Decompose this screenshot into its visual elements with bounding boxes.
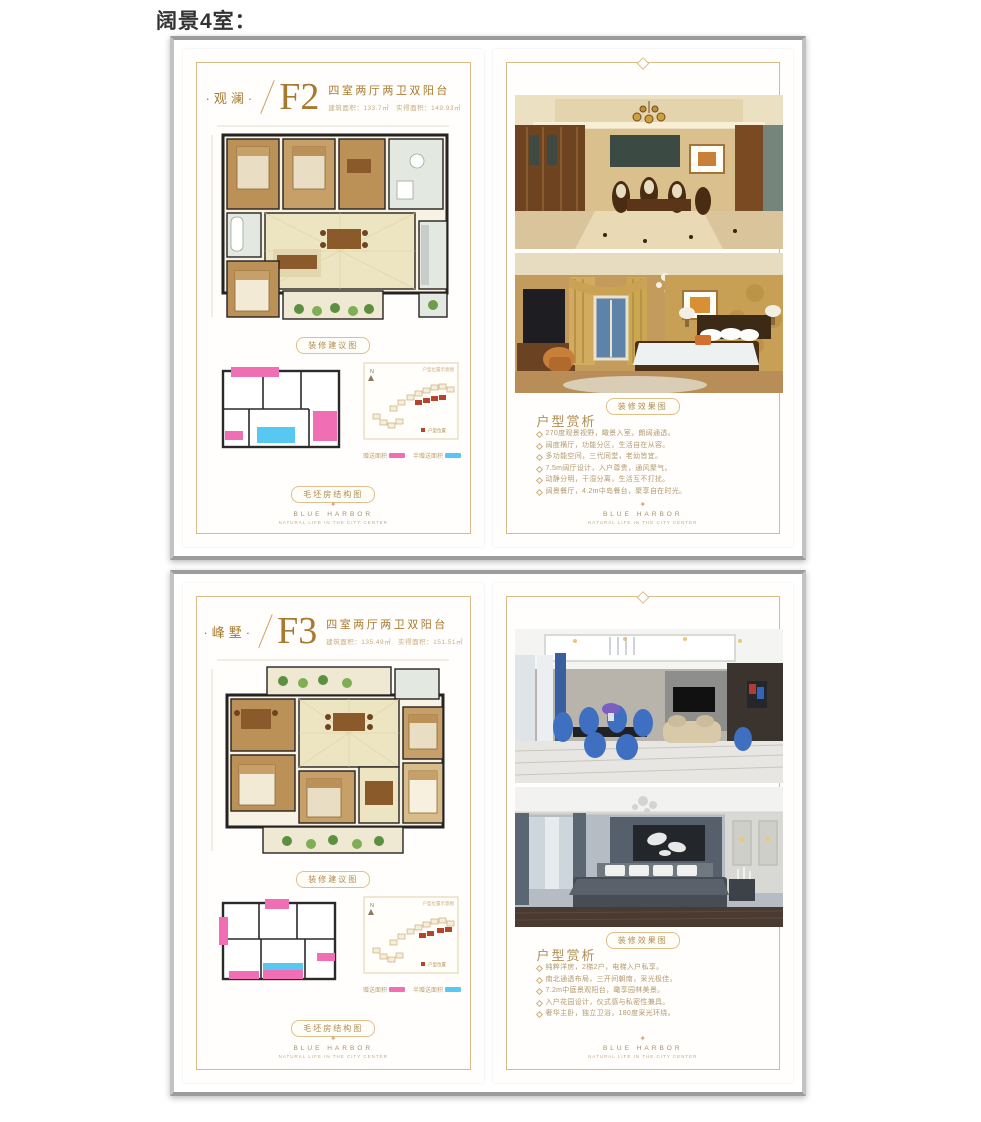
- map-legend-label: 户型位置: [428, 961, 446, 968]
- compass-icon: N: [370, 903, 374, 909]
- f2-bedroom-photo: [515, 253, 783, 393]
- legend-pink: 赠送面积: [363, 451, 405, 460]
- legend-blue-label: 半赠送面积: [413, 451, 443, 460]
- brand-tagline: NATURAL LIFE IN THE CITY CENTER: [588, 520, 697, 525]
- bullet-icon: [535, 988, 542, 995]
- section-heading: 阔景4室：: [156, 5, 257, 35]
- unit-type-block: 四室两厅两卫双阳台 建筑面积：135.49㎡ 实得面积：151.51㎡: [326, 616, 463, 646]
- ornament-icon: ✦: [639, 501, 646, 509]
- brand-tagline: NATURAL LIFE IN THE CITY CENTER: [588, 1054, 697, 1059]
- area-legend: 赠送面积 半赠送面积: [351, 985, 473, 994]
- f2-location-map: 户型位置示意图 N: [363, 362, 459, 451]
- analysis-item: 奢华主卧，独立卫浴，180度采光环绕。: [537, 1010, 776, 1018]
- analysis-item: 7.2m中庭景观阳台，瞰享园林美景。: [537, 987, 776, 995]
- divider-slash: [258, 614, 272, 648]
- analysis-item: 7.5m阔厅设计，入户尊贵，通风聚气。: [537, 465, 776, 473]
- analysis-item: 纯粹洋房，2梯2户，电梯入户私享。: [537, 964, 776, 972]
- badge-photos: 装修效果图: [606, 932, 680, 949]
- analysis-item: 南北通透布局，三开间朝南，采光极佳。: [537, 976, 776, 984]
- f3-photo-page: 装修效果图 户型赏析 纯粹洋房，2梯2户，电梯入户私享。 南北通透布局，三开间朝…: [493, 583, 794, 1083]
- analysis-item: 多功能空间，三代同堂，老幼皆宜。: [537, 453, 776, 461]
- article-page: 阔景4室： ·观澜· F2 四室两厅两卫双阳台 建筑面积：133.7㎡ 实得面积…: [0, 0, 981, 1122]
- blue-swatch-icon: [445, 987, 461, 992]
- unit-code: F2: [279, 78, 319, 116]
- f2-dining-room-photo: [515, 95, 783, 249]
- brochure-image-f3[interactable]: ·峰墅· F3 四室两厅两卫双阳台 建筑面积：135.49㎡ 实得面积：151.…: [170, 570, 806, 1096]
- legend-pink: 赠送面积: [363, 985, 405, 994]
- f2-structure-image: [209, 361, 353, 462]
- ornament-icon: ✦: [330, 1035, 337, 1043]
- map-legend-label: 户型位置: [428, 427, 446, 434]
- blue-swatch-icon: [445, 453, 461, 458]
- f3-floorplan-image: [207, 655, 459, 868]
- series-name: ·峰墅·: [203, 622, 254, 641]
- bullet-icon: [535, 477, 542, 484]
- bullet-icon: [535, 977, 542, 984]
- legend-pink-label: 赠送面积: [363, 985, 387, 994]
- series-name: ·观澜·: [206, 88, 257, 107]
- f2-floorplan-image: [207, 121, 459, 334]
- legend-blue: 半赠送面积: [413, 451, 461, 460]
- f2-photo-page: 装修效果图 户型赏析 270度观景视野，瞰景入室，朗阔通透。 阔度横厅，功能分区…: [493, 49, 794, 547]
- ornament-icon: ✦: [639, 1035, 646, 1043]
- analysis-item: 270度观景视野，瞰景入室，朗阔通透。: [537, 430, 776, 438]
- map-title: 户型位置示意图: [423, 900, 455, 907]
- analysis-item: 动静分明，干湿分离，生活互不打扰。: [537, 476, 776, 484]
- f2-plan-page: ·观澜· F2 四室两厅两卫双阳台 建筑面积：133.7㎡ 实得面积：149.9…: [183, 49, 484, 547]
- analysis-heading: 户型赏析: [537, 411, 597, 430]
- brand-name: BLUE HARBOR: [293, 511, 373, 518]
- area-legend: 赠送面积 半赠送面积: [351, 451, 473, 460]
- map-title: 户型位置示意图: [423, 366, 455, 373]
- badge-photos: 装修效果图: [606, 398, 680, 415]
- legend-pink-label: 赠送面积: [363, 451, 387, 460]
- f2-analysis-list: 270度观景视野，瞰景入室，朗阔通透。 阔度横厅，功能分区，生活自在从容。 多功…: [537, 430, 776, 500]
- brand-name: BLUE HARBOR: [603, 511, 683, 518]
- brand-footer: ✦ BLUE HARBOR NATURAL LIFE IN THE CITY C…: [493, 1035, 794, 1059]
- legend-blue: 半赠送面积: [413, 985, 461, 994]
- bullet-icon: [535, 466, 542, 473]
- brand-name: BLUE HARBOR: [603, 1045, 683, 1052]
- divider-slash: [260, 80, 274, 114]
- pink-swatch-icon: [389, 987, 405, 992]
- ornament-icon: ✦: [330, 501, 337, 509]
- f3-living-room-photo: [515, 629, 783, 783]
- bullet-icon: [535, 1011, 542, 1018]
- brand-footer: ✦ BLUE HARBOR NATURAL LIFE IN THE CITY C…: [183, 501, 484, 525]
- unit-code: F3: [277, 612, 317, 650]
- bullet-icon: [535, 965, 542, 972]
- diamond-ornament-icon: [636, 591, 649, 604]
- unit-type-block: 四室两厅两卫双阳台 建筑面积：133.7㎡ 实得面积：149.93㎡: [328, 82, 461, 112]
- f3-plan-page: ·峰墅· F3 四室两厅两卫双阳台 建筑面积：135.49㎡ 实得面积：151.…: [183, 583, 484, 1083]
- pink-swatch-icon: [389, 453, 405, 458]
- compass-icon: N: [370, 369, 374, 375]
- bullet-icon: [535, 443, 542, 450]
- diamond-ornament-icon: [636, 57, 649, 70]
- analysis-item: 阔度横厅，功能分区，生活自在从容。: [537, 442, 776, 450]
- brand-tagline: NATURAL LIFE IN THE CITY CENTER: [279, 1054, 388, 1059]
- analysis-item: 阔景餐厅，4.2m中岛餐台，聚享自在时光。: [537, 488, 776, 496]
- f3-header: ·峰墅· F3 四室两厅两卫双阳台 建筑面积：135.49㎡ 实得面积：151.…: [183, 607, 484, 655]
- f3-analysis-list: 纯粹洋房，2梯2户，电梯入户私享。 南北通透布局，三开间朝南，采光极佳。 7.2…: [537, 964, 776, 1022]
- bullet-icon: [535, 489, 542, 496]
- badge-plan: 装修建议图: [296, 337, 370, 354]
- unit-type: 四室两厅两卫双阳台: [326, 616, 463, 632]
- f3-location-map: 户型位置示意图 N: [363, 896, 459, 985]
- bullet-icon: [535, 1000, 542, 1007]
- bullet-icon: [535, 454, 542, 461]
- unit-area: 建筑面积：133.7㎡ 实得面积：149.93㎡: [328, 102, 461, 112]
- unit-type: 四室两厅两卫双阳台: [328, 82, 461, 98]
- unit-area: 建筑面积：135.49㎡ 实得面积：151.51㎡: [326, 636, 463, 646]
- analysis-heading: 户型赏析: [537, 945, 597, 964]
- f3-bedroom-photo: [515, 787, 783, 927]
- brand-name: BLUE HARBOR: [293, 1045, 373, 1052]
- legend-blue-label: 半赠送面积: [413, 985, 443, 994]
- f2-header: ·观澜· F2 四室两厅两卫双阳台 建筑面积：133.7㎡ 实得面积：149.9…: [183, 73, 484, 121]
- brand-footer: ✦ BLUE HARBOR NATURAL LIFE IN THE CITY C…: [493, 501, 794, 525]
- brand-tagline: NATURAL LIFE IN THE CITY CENTER: [279, 520, 388, 525]
- badge-plan: 装修建议图: [296, 871, 370, 888]
- brochure-image-f2[interactable]: ·观澜· F2 四室两厅两卫双阳台 建筑面积：133.7㎡ 实得面积：149.9…: [170, 36, 806, 560]
- f3-structure-image: [209, 895, 353, 996]
- analysis-item: 入户花园设计，仪式感与私密性兼具。: [537, 999, 776, 1007]
- bullet-icon: [535, 431, 542, 438]
- brand-footer: ✦ BLUE HARBOR NATURAL LIFE IN THE CITY C…: [183, 1035, 484, 1059]
